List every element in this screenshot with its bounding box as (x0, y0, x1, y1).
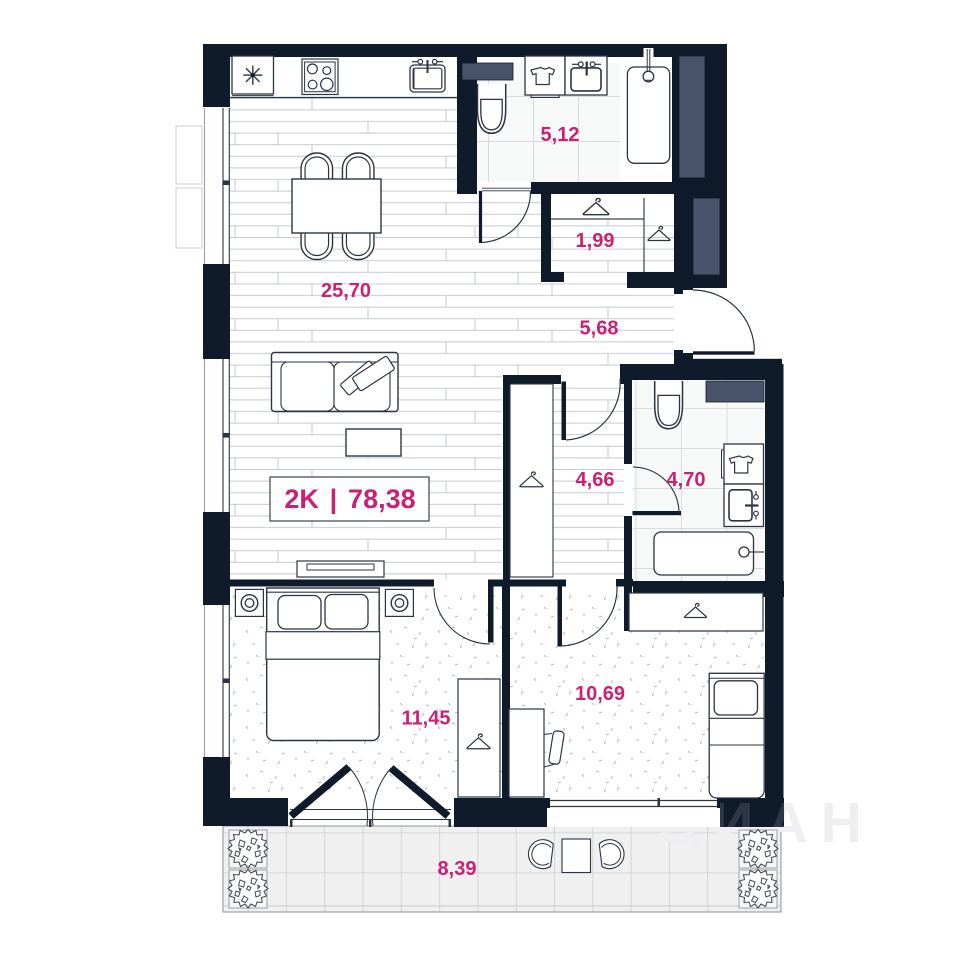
svg-text:2K | 78,38: 2K | 78,38 (284, 484, 415, 514)
svg-text:11,45: 11,45 (402, 708, 451, 730)
svg-text:5,12: 5,12 (541, 124, 580, 146)
svg-text:25,70: 25,70 (321, 280, 371, 302)
svg-text:4,70: 4,70 (667, 469, 706, 491)
svg-text:1,99: 1,99 (576, 230, 615, 252)
svg-text:10,69: 10,69 (575, 683, 625, 705)
svg-text:5,68: 5,68 (580, 318, 619, 340)
svg-text:4,66: 4,66 (576, 469, 615, 491)
svg-text:8,39: 8,39 (438, 858, 477, 880)
